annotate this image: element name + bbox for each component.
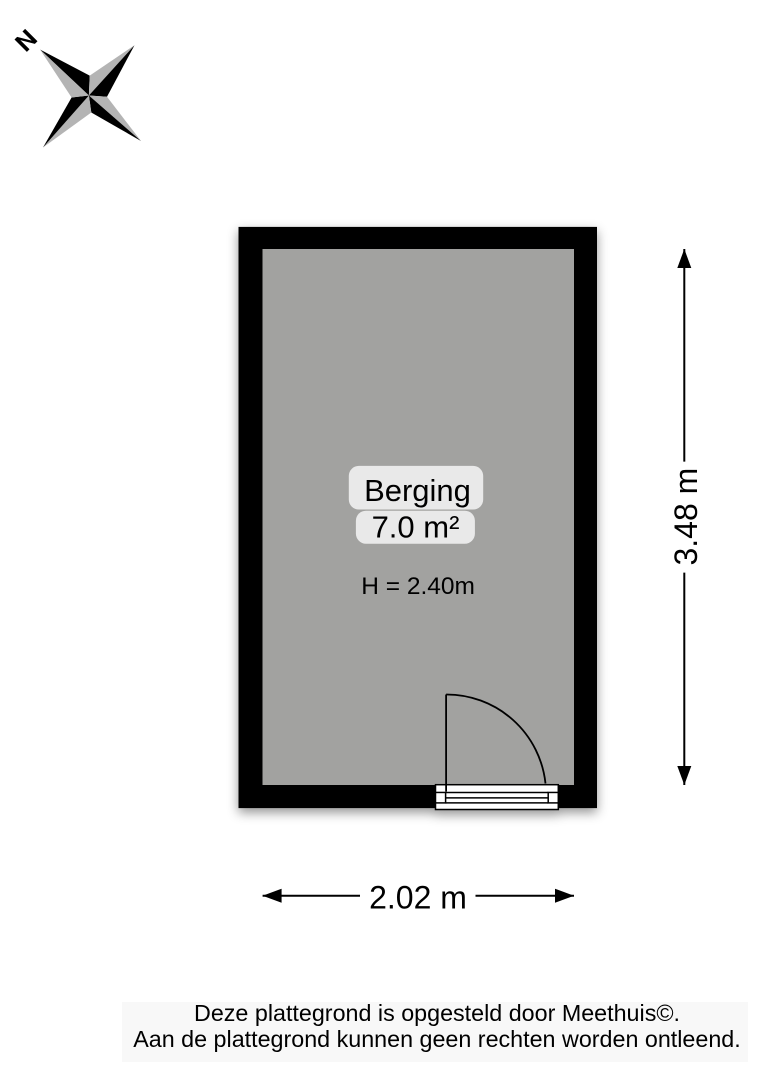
svg-text:H = 2.40m: H = 2.40m xyxy=(361,573,475,600)
svg-text:3.48 m: 3.48 m xyxy=(668,468,704,566)
svg-text:Deze plattegrond is opgesteld: Deze plattegrond is opgesteld door Meeth… xyxy=(194,1000,680,1026)
svg-text:7.0 m²: 7.0 m² xyxy=(372,510,460,545)
svg-text:Berging: Berging xyxy=(364,473,471,508)
svg-text:Aan de plattegrond kunnen geen: Aan de plattegrond kunnen geen rechten w… xyxy=(133,1026,740,1052)
svg-text:2.02 m: 2.02 m xyxy=(369,879,467,915)
